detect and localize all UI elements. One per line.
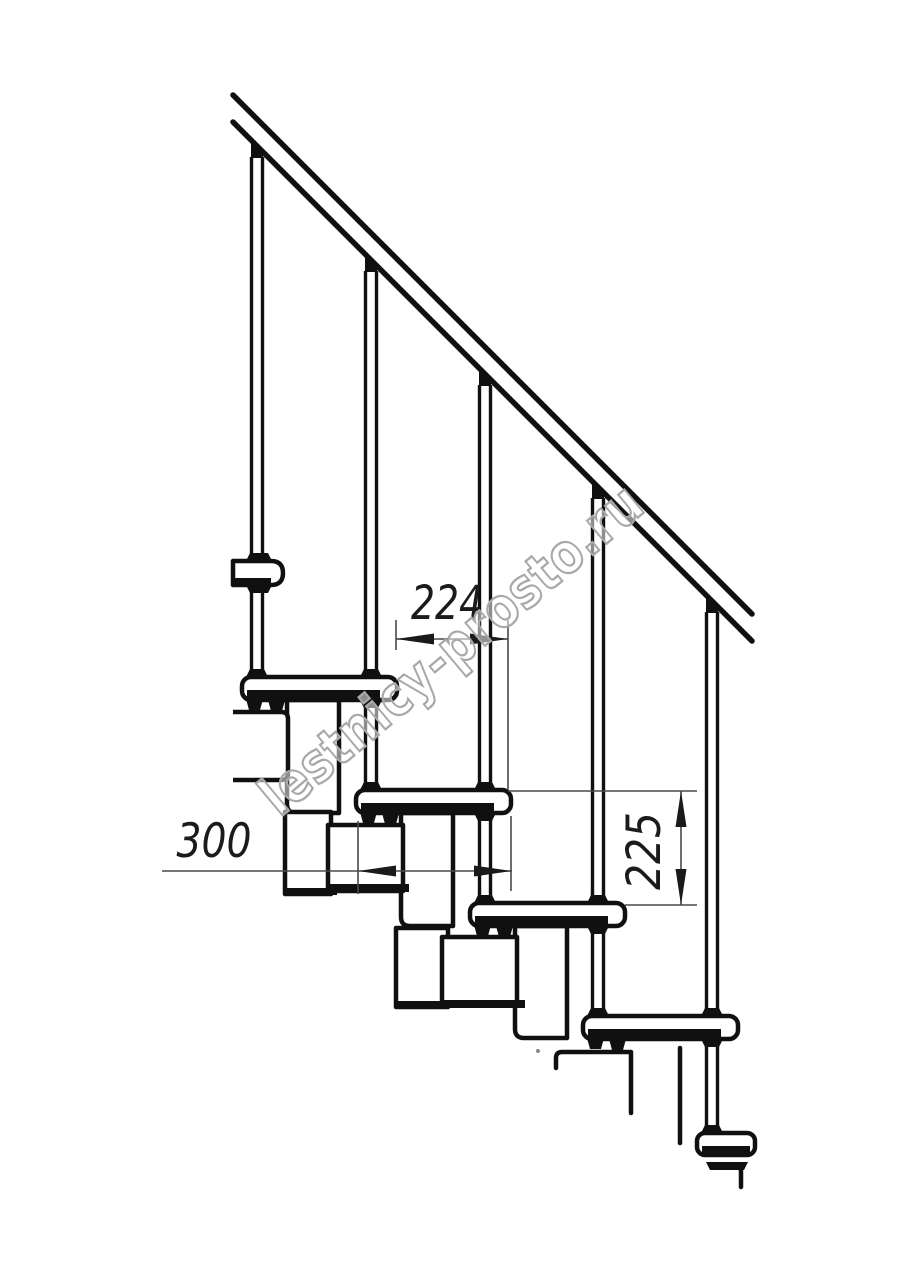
baluster-4-base	[587, 1008, 609, 1016]
print-dot-artifact	[536, 1049, 540, 1053]
page: { "document": { "type": "technical-drawi…	[0, 0, 914, 1280]
baluster-5-base	[701, 1125, 723, 1133]
handrail	[233, 95, 752, 641]
baluster-1-base	[246, 669, 268, 677]
watermark-text: lestnicy-prosto.ru	[247, 470, 656, 828]
main-box-3	[442, 937, 517, 1005]
collar-below-tread-0	[246, 585, 272, 593]
collar-above-tread-0	[246, 553, 272, 561]
collar-below-tread-4	[701, 1039, 723, 1047]
tread-5-fragment	[697, 1125, 755, 1187]
main-box-2	[328, 825, 403, 891]
tread-4	[583, 1008, 738, 1050]
collar-below-tread-3	[587, 926, 609, 934]
baluster-2-base	[360, 782, 382, 790]
baluster-5	[706, 594, 718, 1129]
main-box-4-top-fragment	[556, 1052, 629, 1068]
dim-label-225: 225	[617, 812, 672, 890]
channel-under-tread-2	[401, 813, 453, 926]
collar-above-tread-4	[701, 1008, 723, 1016]
baluster-3-base	[474, 895, 496, 903]
collar-above-tread-2	[474, 782, 496, 790]
main-box-2-base	[328, 884, 409, 892]
main-box-3-base	[442, 1000, 525, 1008]
dim-label-300: 300	[177, 814, 252, 869]
channel-under-tread-3	[515, 926, 567, 1038]
staircase-technical-drawing: 224 300 225 lestnicy-prosto.ru	[0, 0, 914, 1280]
handrail-top-line	[233, 95, 752, 614]
drawing-canvas: 224 300 225 lestnicy-prosto.ru	[0, 0, 914, 1280]
collar-above-tread-3	[587, 895, 609, 903]
collar-below-tread-2	[474, 813, 496, 821]
handrail-bottom-line	[233, 122, 752, 641]
